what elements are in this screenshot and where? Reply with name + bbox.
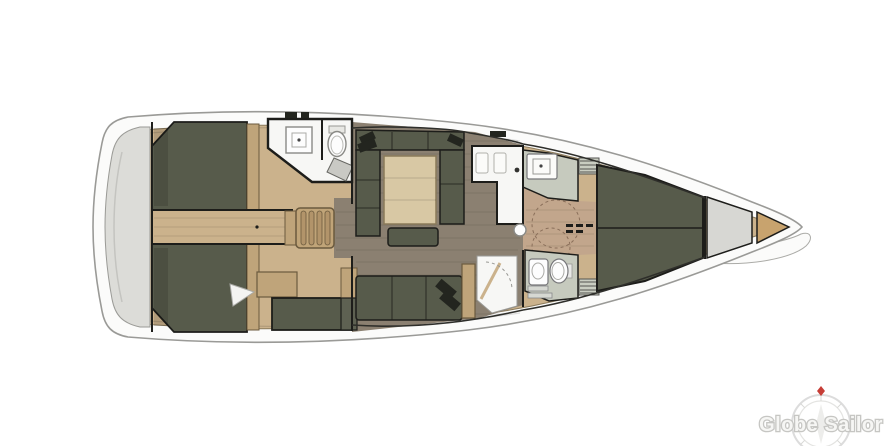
storage-locker <box>272 298 352 330</box>
floor-plan-canvas: Globe Sailor <box>0 0 890 446</box>
yacht-floor-plan: Globe Sailor <box>0 0 890 446</box>
stairs-landing <box>285 211 297 245</box>
settee-left-cushion <box>356 150 380 236</box>
stern-platform <box>105 122 152 332</box>
stove <box>476 153 488 173</box>
globesailor-logo: Globe Sailor <box>759 386 883 446</box>
watermark-text: Globe Sailor <box>759 414 883 436</box>
stool <box>514 224 526 236</box>
storage-cabinet <box>257 272 297 297</box>
settee-end-cabinet <box>462 264 475 318</box>
settee-right-cushion <box>440 150 464 224</box>
saloon-table <box>384 156 436 224</box>
saloon-bench <box>388 228 438 246</box>
forward-head-entry <box>477 256 517 313</box>
wardrobe-upper <box>341 268 357 298</box>
galley-sink <box>494 153 506 173</box>
